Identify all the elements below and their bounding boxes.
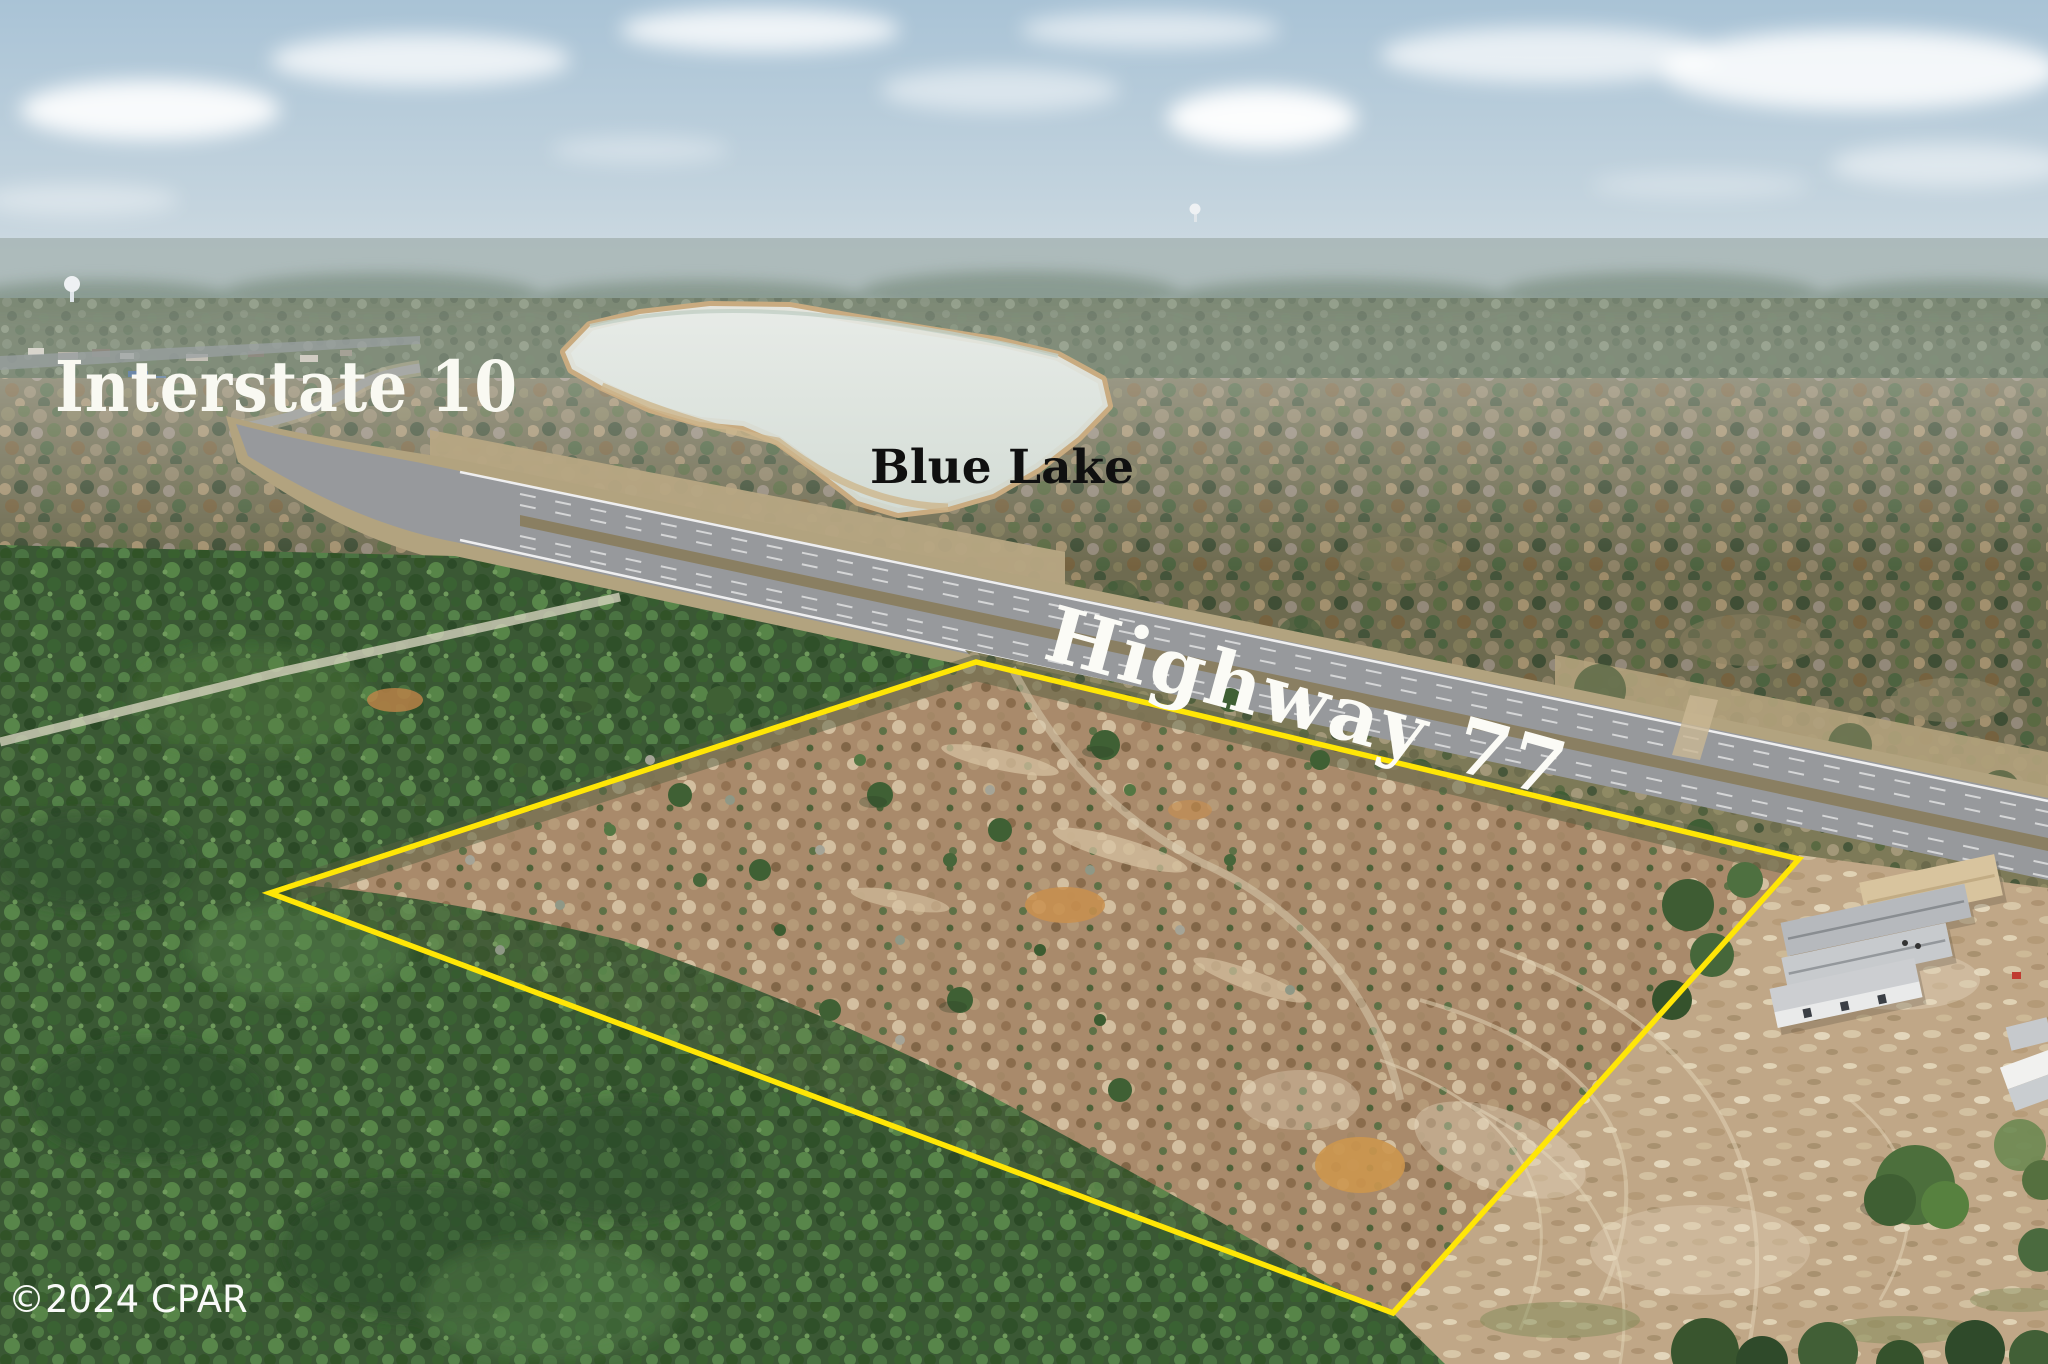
copyright-watermark: ©2024 CPAR (8, 1281, 248, 1318)
aerial-photo: Interstate 10 Blue Lake Highway 77 ©2024… (0, 0, 2048, 1364)
blue-lake-label: Blue Lake (870, 444, 1134, 491)
interstate-10-label: Interstate 10 (55, 352, 518, 422)
aerial-photo-scene (0, 0, 2048, 1364)
